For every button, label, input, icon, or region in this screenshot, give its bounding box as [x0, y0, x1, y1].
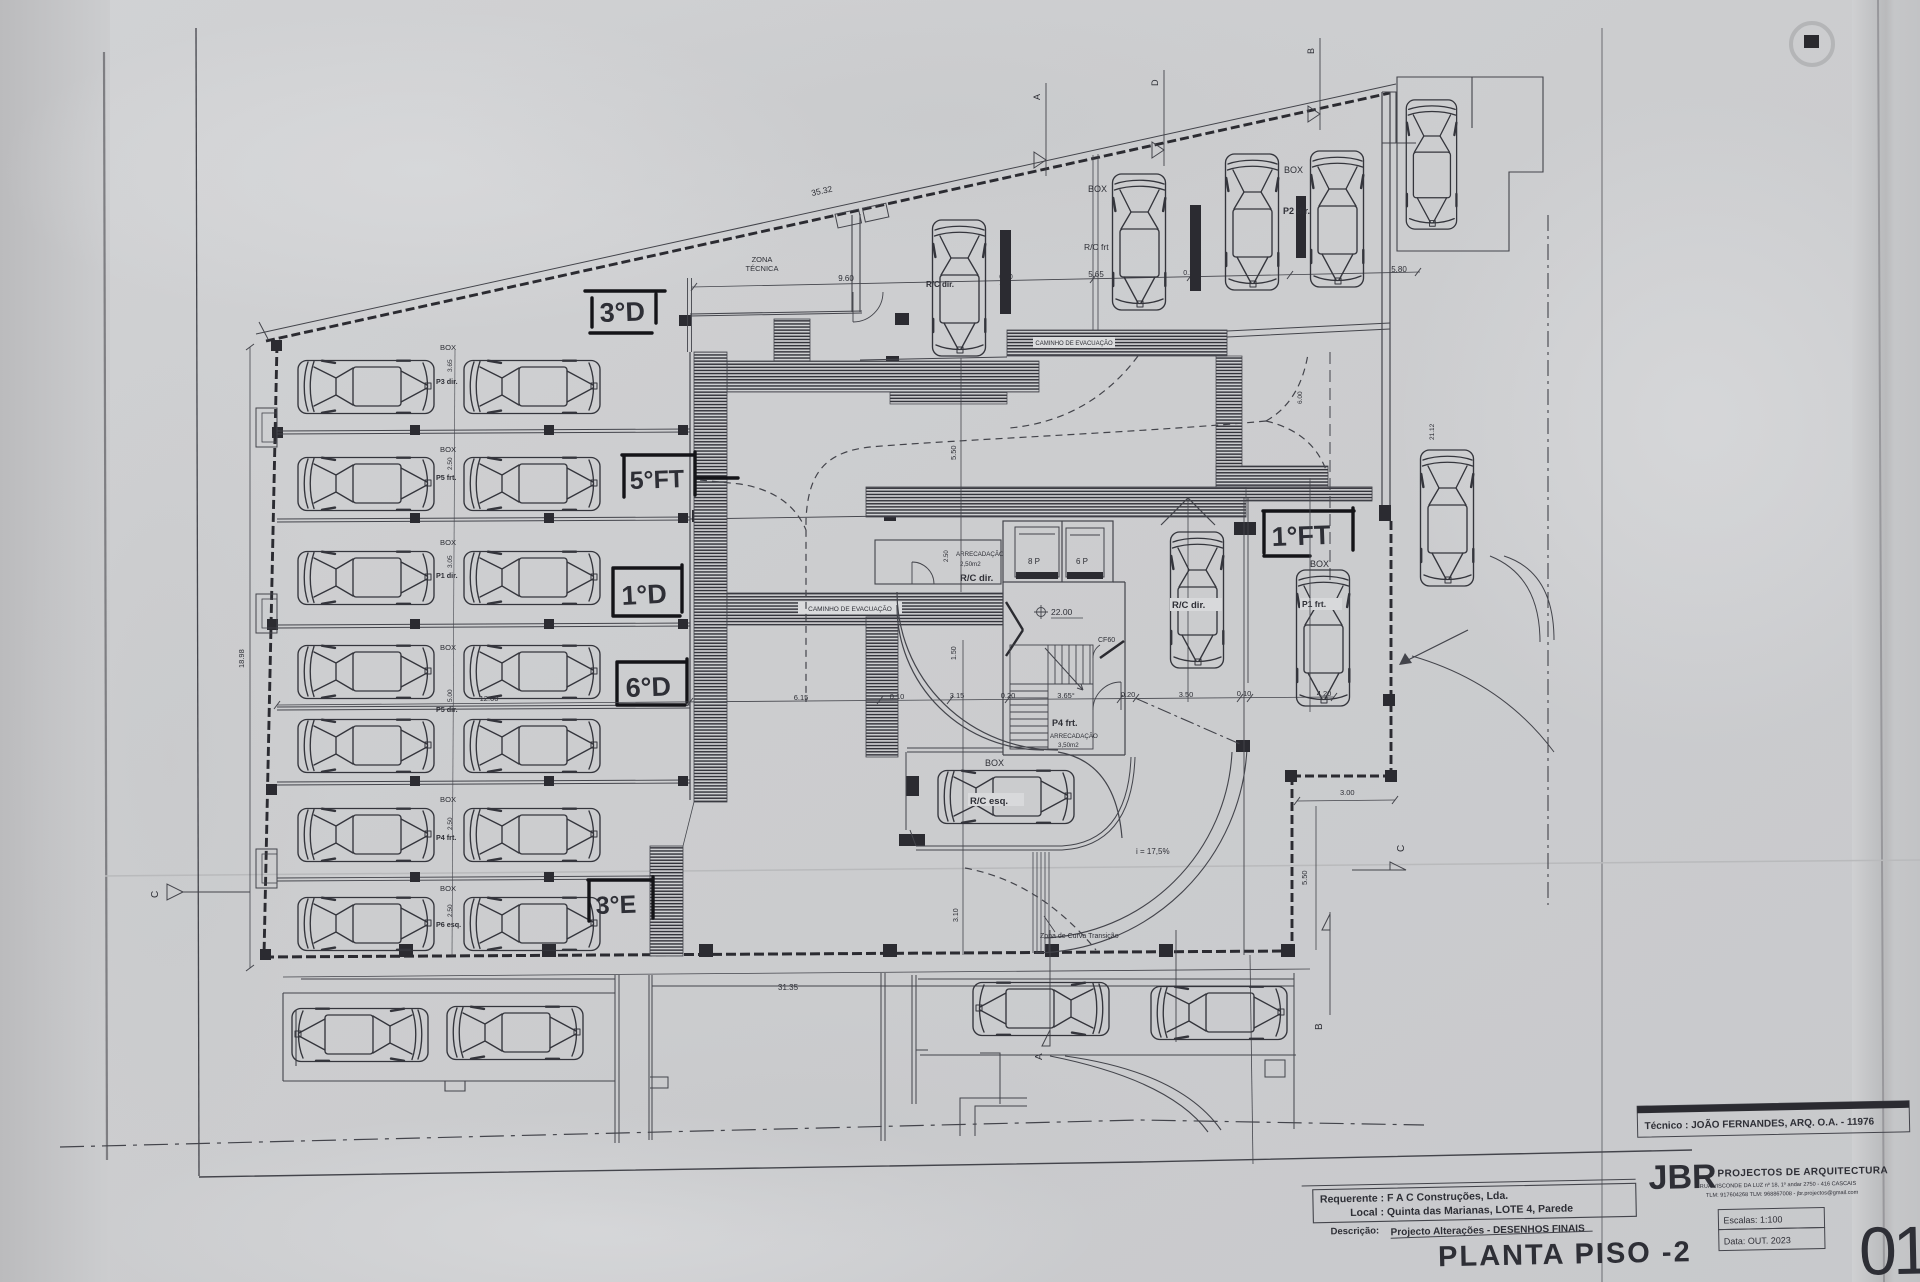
svg-text:3.50: 3.50: [1179, 690, 1194, 699]
svg-text:C: C: [1396, 845, 1407, 852]
svg-text:18.98: 18.98: [237, 649, 246, 668]
svg-text:1°D: 1°D: [621, 579, 668, 611]
svg-text:3,50m2: 3,50m2: [1058, 742, 1079, 749]
svg-text:BOX: BOX: [1284, 165, 1303, 175]
svg-text:ZONA: ZONA: [752, 255, 773, 264]
svg-text:6.15: 6.15: [794, 693, 809, 702]
svg-text:A: A: [1032, 94, 1042, 100]
svg-text:R/C dir.: R/C dir.: [960, 573, 993, 584]
svg-text:5.65: 5.65: [1088, 270, 1104, 279]
svg-text:BOX: BOX: [440, 795, 456, 804]
svg-text:PLANTA PISO -2: PLANTA PISO -2: [1438, 1236, 1692, 1273]
svg-text:2.50: 2.50: [944, 550, 950, 562]
svg-text:3.65°: 3.65°: [1057, 691, 1075, 700]
svg-text:21.12: 21.12: [1429, 423, 1436, 440]
svg-text:6.00: 6.00: [1297, 391, 1304, 404]
svg-text:A: A: [1034, 1053, 1045, 1060]
svg-text:ARRECADAÇÃO: ARRECADAÇÃO: [956, 551, 1004, 558]
svg-text:ARRECADAÇÃO: ARRECADAÇÃO: [1050, 733, 1098, 740]
svg-text:2.50: 2.50: [447, 904, 454, 917]
svg-text:P4 frt.: P4 frt.: [1052, 718, 1078, 728]
svg-text:2.50: 2.50: [447, 457, 454, 470]
svg-text:CAMINHO DE EVACUAÇÃO: CAMINHO DE EVACUAÇÃO: [808, 604, 892, 613]
svg-text:2,50m2: 2,50m2: [960, 561, 981, 568]
svg-text:0.10: 0.10: [890, 692, 905, 701]
svg-text:BOX: BOX: [985, 758, 1004, 768]
svg-text:BOX: BOX: [1310, 559, 1329, 569]
svg-text:9.60: 9.60: [838, 274, 854, 283]
svg-text:P1 dir.: P1 dir.: [436, 571, 458, 580]
svg-text:P5 frt.: P5 frt.: [436, 473, 456, 482]
svg-text:3.00: 3.00: [1340, 788, 1355, 797]
svg-text:BOX: BOX: [1088, 184, 1107, 194]
svg-text:2.50: 2.50: [447, 817, 454, 830]
svg-text:0.20: 0.20: [1121, 690, 1136, 699]
svg-text:P4 frt.: P4 frt.: [436, 833, 456, 842]
svg-text:3.10: 3.10: [953, 908, 960, 922]
svg-text:5°FT: 5°FT: [629, 465, 684, 495]
svg-text:8 P: 8 P: [1028, 557, 1040, 566]
svg-text:Descrição:: Descrição:: [1330, 1225, 1379, 1237]
svg-text:B: B: [1314, 1023, 1325, 1030]
svg-text:i = 17,5%: i = 17,5%: [1136, 847, 1170, 856]
svg-text:BOX: BOX: [440, 884, 456, 893]
svg-text:1.50: 1.50: [951, 646, 958, 660]
svg-text:CF60: CF60: [1098, 637, 1115, 644]
svg-text:D: D: [1150, 79, 1160, 86]
svg-text:31.35: 31.35: [778, 983, 799, 992]
svg-text:6 P: 6 P: [1076, 557, 1088, 566]
svg-text:22.00: 22.00: [1051, 607, 1073, 617]
svg-text:5.50: 5.50: [949, 445, 958, 460]
svg-text:6°D: 6°D: [625, 671, 671, 703]
svg-text:5.50: 5.50: [1300, 870, 1309, 885]
svg-text:3°E: 3°E: [595, 891, 637, 920]
svg-text:3°D: 3°D: [599, 296, 645, 328]
svg-text:Data: OUT. 2023: Data: OUT. 2023: [1724, 1235, 1791, 1246]
svg-text:P5 dir.: P5 dir.: [436, 705, 458, 714]
svg-text:1°FT: 1°FT: [1271, 520, 1331, 552]
svg-text:BOX: BOX: [440, 643, 456, 652]
svg-text:R/C frt: R/C frt: [1084, 242, 1109, 252]
svg-text:JBR: JBR: [1648, 1158, 1717, 1197]
svg-text:P1 frt.: P1 frt.: [1302, 599, 1326, 609]
svg-text:B: B: [1306, 48, 1316, 54]
svg-text:01: 01: [1858, 1212, 1920, 1282]
svg-text:BOX: BOX: [440, 343, 456, 352]
svg-text:Zona de Curva Transição: Zona de Curva Transição: [1040, 933, 1119, 940]
svg-text:3.15: 3.15: [950, 691, 965, 700]
svg-text:R/C esq.: R/C esq.: [970, 796, 1008, 807]
svg-text:BOX: BOX: [440, 445, 456, 454]
svg-text:5.80: 5.80: [1391, 265, 1407, 274]
svg-text:TÉCNICA: TÉCNICA: [746, 264, 779, 273]
svg-text:12.60: 12.60: [480, 694, 499, 703]
svg-text:3.65: 3.65: [447, 359, 454, 372]
svg-text:0.20: 0.20: [1001, 691, 1016, 700]
svg-text:P2 dir.: P2 dir.: [1283, 206, 1310, 216]
svg-text:CAMINHO DE EVACUAÇÃO: CAMINHO DE EVACUAÇÃO: [1035, 340, 1113, 347]
svg-text:R/C dir.: R/C dir.: [1172, 600, 1205, 611]
svg-text:5.00: 5.00: [447, 689, 454, 702]
svg-text:BOX: BOX: [440, 538, 456, 547]
svg-text:3.05: 3.05: [447, 555, 454, 568]
svg-text:P6 esq.: P6 esq.: [436, 920, 461, 929]
svg-text:C: C: [150, 891, 161, 898]
svg-text:P3 dir.: P3 dir.: [436, 377, 458, 386]
svg-text:Escalas: 1:100: Escalas: 1:100: [1723, 1214, 1782, 1225]
